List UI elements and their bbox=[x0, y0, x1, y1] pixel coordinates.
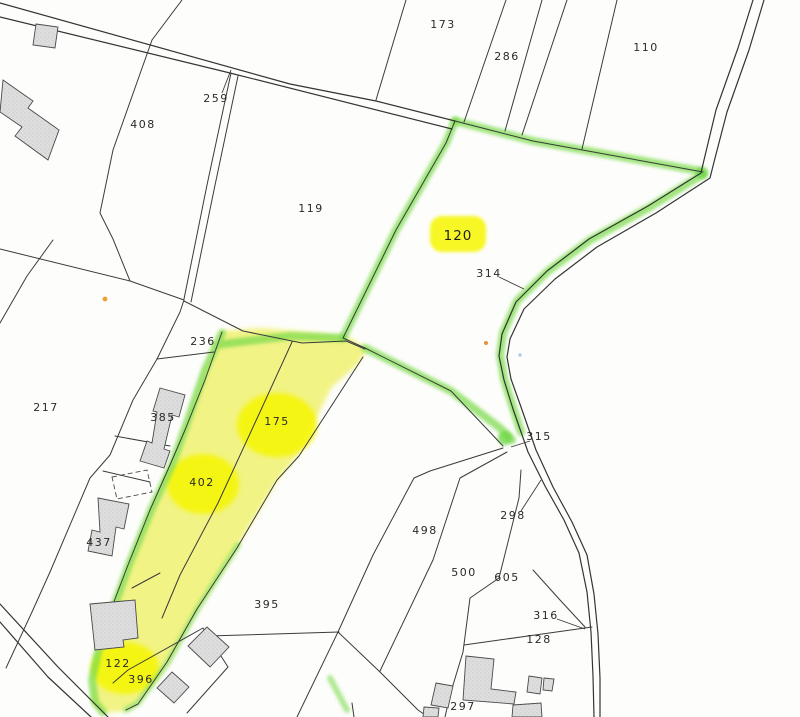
parcel-label-217: 217 bbox=[33, 401, 59, 414]
parcel-label-259: 259 bbox=[203, 92, 229, 105]
boundary-line bbox=[152, 0, 182, 40]
parcel-label-298: 298 bbox=[500, 509, 526, 522]
boundary-line bbox=[208, 632, 339, 636]
boundary-line bbox=[522, 0, 567, 135]
boundary-line bbox=[343, 338, 503, 446]
building bbox=[463, 656, 516, 704]
highlight-layer bbox=[91, 121, 708, 713]
parcel-label-175: 175 bbox=[264, 415, 290, 428]
parcel-label-498: 498 bbox=[412, 524, 438, 537]
boundary-line bbox=[103, 471, 150, 482]
parcel-label-286: 286 bbox=[494, 50, 520, 63]
parcel-label-173: 173 bbox=[430, 18, 456, 31]
parcel-label-500: 500 bbox=[451, 566, 477, 579]
blue-dot bbox=[518, 353, 521, 356]
parcel-label-437: 437 bbox=[86, 536, 112, 549]
parcel-label-236: 236 bbox=[190, 335, 216, 348]
boundary-line bbox=[0, 240, 53, 323]
boundary-line bbox=[100, 40, 152, 281]
boundary-line bbox=[582, 0, 617, 149]
building bbox=[527, 676, 542, 694]
parcel-label-110: 110 bbox=[633, 41, 659, 54]
parcel-label-120: 120 bbox=[444, 228, 473, 244]
building bbox=[0, 80, 59, 160]
parcel-label-385: 385 bbox=[150, 411, 176, 424]
parcel-label-128: 128 bbox=[526, 633, 552, 646]
parcel-label-122: 122 bbox=[105, 657, 131, 670]
leader-314 bbox=[499, 277, 524, 289]
parcel-label-119: 119 bbox=[298, 202, 324, 215]
boundary-line bbox=[338, 632, 428, 717]
boundary-line bbox=[376, 0, 406, 100]
leader-316 bbox=[557, 619, 585, 629]
orange-dot bbox=[103, 297, 108, 302]
boundary-line bbox=[184, 73, 231, 299]
parcel-label-314: 314 bbox=[476, 267, 502, 280]
parcel-label-402: 402 bbox=[189, 476, 215, 489]
boundary-line bbox=[380, 452, 507, 671]
building bbox=[157, 672, 189, 703]
parcel-label-315: 315 bbox=[526, 430, 552, 443]
leader-298 bbox=[521, 480, 541, 511]
parcel-label-396: 396 bbox=[128, 673, 154, 686]
boundary-line bbox=[352, 703, 354, 717]
green-boundary-north bbox=[455, 121, 700, 171]
map-canvas: 1732861102594081191203142362173851753154… bbox=[0, 0, 800, 717]
parcel-label-316: 316 bbox=[533, 609, 559, 622]
boundary-line bbox=[191, 76, 238, 302]
orange-dot bbox=[484, 341, 488, 345]
building bbox=[423, 707, 439, 717]
green-streak-bottom bbox=[330, 678, 347, 710]
cadastral-map: 1732861102594081191203142362173851753154… bbox=[0, 0, 800, 717]
green-boundary-to-315 bbox=[365, 348, 512, 440]
boundary-line bbox=[505, 0, 542, 131]
building bbox=[512, 703, 542, 717]
parcel-label-297: 297 bbox=[450, 700, 476, 713]
road-edge bbox=[0, 622, 91, 717]
building bbox=[33, 24, 58, 48]
parcel-label-408: 408 bbox=[130, 118, 156, 131]
boundary-line bbox=[157, 352, 214, 359]
parcel-label-395: 395 bbox=[254, 598, 280, 611]
building bbox=[543, 678, 554, 691]
parcel-label-605: 605 bbox=[494, 571, 520, 584]
